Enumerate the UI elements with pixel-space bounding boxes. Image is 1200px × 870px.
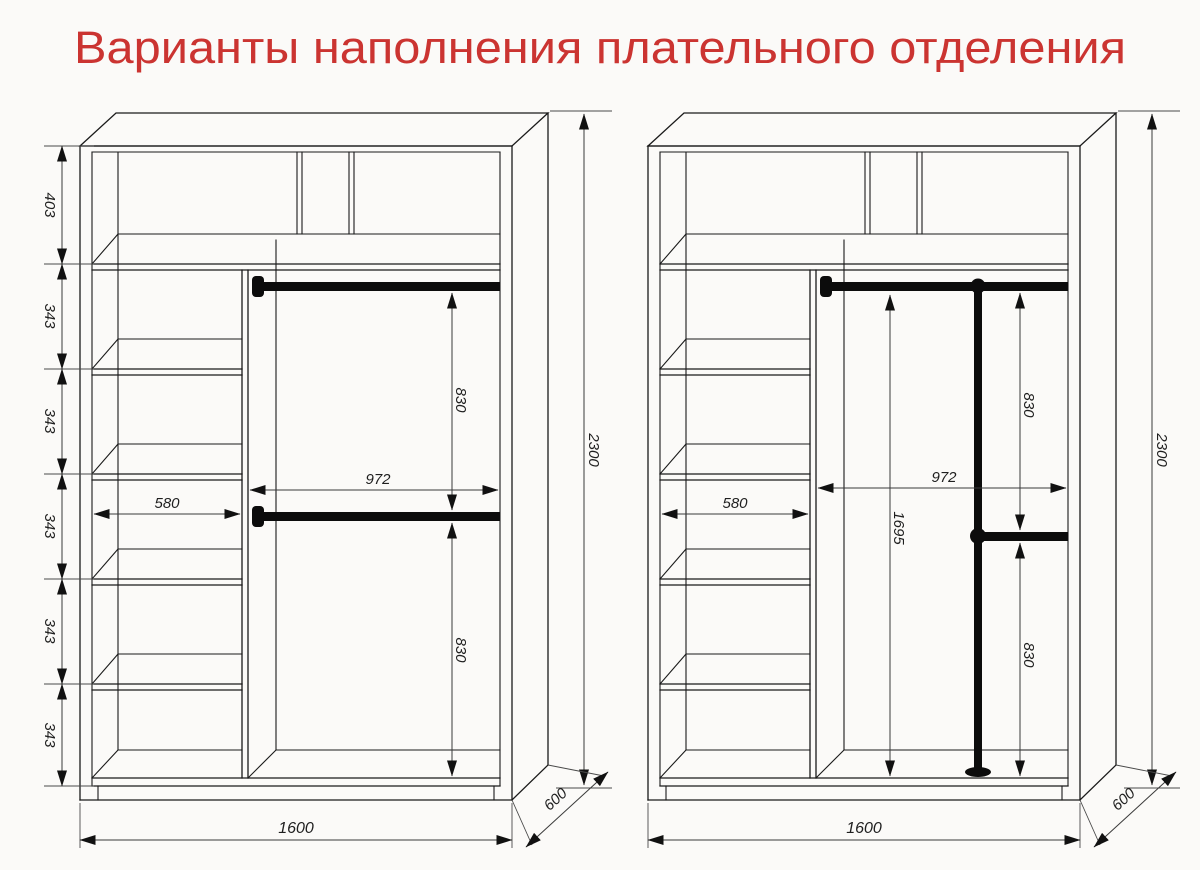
dim-total-width: 1600 [648,803,1080,848]
dim-depth: 600 [512,765,608,847]
dim-label-830-lower: 830 [1020,642,1037,668]
dim-total-height: 2300 [550,111,612,788]
dim-shelf-gap-343-3: 343 [41,513,58,539]
diagram-page: Варианты наполнения плательного отделени… [0,0,1200,870]
page-title: Варианты наполнения плательного отделени… [74,22,1126,73]
dim-label-830-upper: 830 [452,387,469,413]
dim-label-2300: 2300 [585,432,602,467]
dim-rod-to-floor: 830 [452,523,469,776]
dim-label-1695: 1695 [890,511,907,545]
dim-shelf-gap-343-5: 343 [41,722,58,748]
dim-label-1600: 1600 [846,820,882,837]
dim-depth: 600 [1080,765,1176,847]
upper-hanging-rod [252,276,500,297]
dim-label-830-upper: 830 [1020,392,1037,418]
dim-label-972: 972 [365,471,391,488]
dim-label-1600: 1600 [278,820,314,837]
dim-hanging-width: 972 [818,469,1066,488]
dim-shelf-gap-343-2: 343 [41,408,58,434]
right-wardrobe: 580 972 1695 830 830 2300 [648,111,1180,848]
dim-label-580: 580 [722,495,748,512]
upper-hanging-rod [820,276,1068,297]
dim-rod-to-floor: 830 [1020,543,1037,776]
dim-label-2300: 2300 [1153,432,1170,467]
dim-label-972: 972 [931,469,957,486]
rod-support-post [965,279,991,778]
dim-top-section-403: 403 [41,192,58,218]
dim-shelf-width: 580 [662,495,808,514]
left-wardrobe: 403 343 343 343 343 343 580 972 830 830 [41,111,612,848]
dim-total-height: 2300 [1118,111,1180,788]
dim-rod-gap: 830 [452,293,469,510]
wardrobe-diagram: Варианты наполнения плательного отделени… [0,0,1200,870]
dim-shelf-gap-343-1: 343 [41,303,58,329]
dim-hanging-width: 972 [250,471,498,490]
lower-hanging-rod [970,528,1068,544]
lower-hanging-rod [252,506,500,527]
dim-long-hang-height: 1695 [890,295,907,776]
dim-rod-gap: 830 [1020,293,1037,530]
dim-total-width: 1600 [80,803,512,848]
dim-label-580: 580 [154,495,180,512]
dim-shelf-width: 580 [94,495,240,514]
height-dimension-chain: 403 343 343 343 343 343 [41,146,94,786]
dim-shelf-gap-343-4: 343 [41,618,58,644]
dim-label-830-lower: 830 [452,637,469,663]
